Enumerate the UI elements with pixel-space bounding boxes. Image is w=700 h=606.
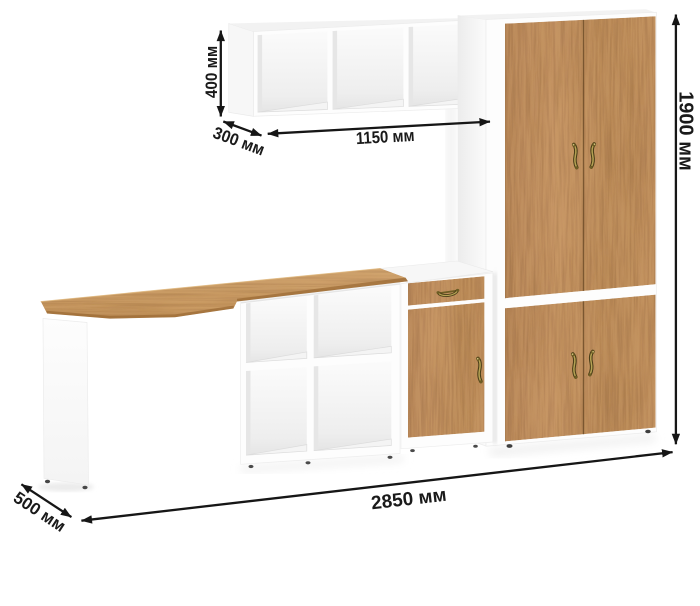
svg-text:400 мм: 400 мм xyxy=(202,46,221,98)
svg-text:1900 мм: 1900 мм xyxy=(675,91,697,171)
svg-text:1150 мм: 1150 мм xyxy=(355,127,415,148)
